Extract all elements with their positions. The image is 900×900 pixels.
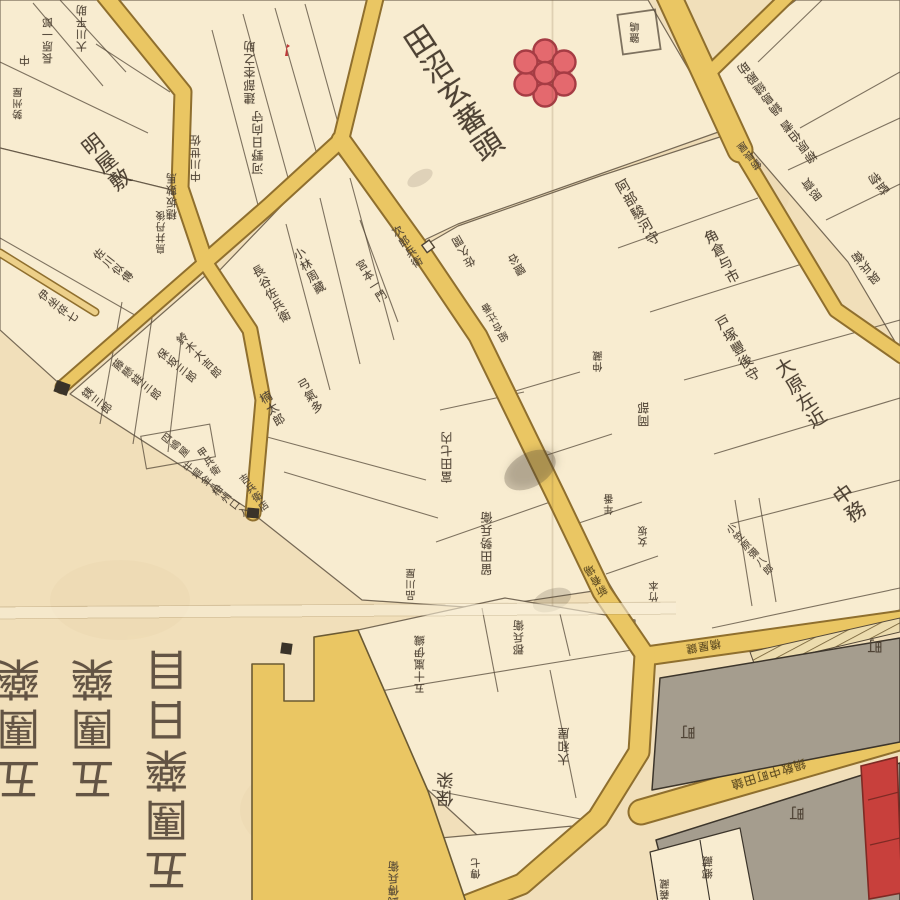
plum-blossom-crest	[515, 40, 576, 107]
map-canvas	[0, 0, 900, 900]
edo-map[interactable]: 大川平助長原一郎中勢州屋建部杢之助河野日向守中川世佐穗坂數馬鳥井丹後明屋敷佐川似…	[0, 0, 900, 900]
guard-post-square	[280, 642, 292, 654]
guard-post-square	[247, 507, 260, 518]
